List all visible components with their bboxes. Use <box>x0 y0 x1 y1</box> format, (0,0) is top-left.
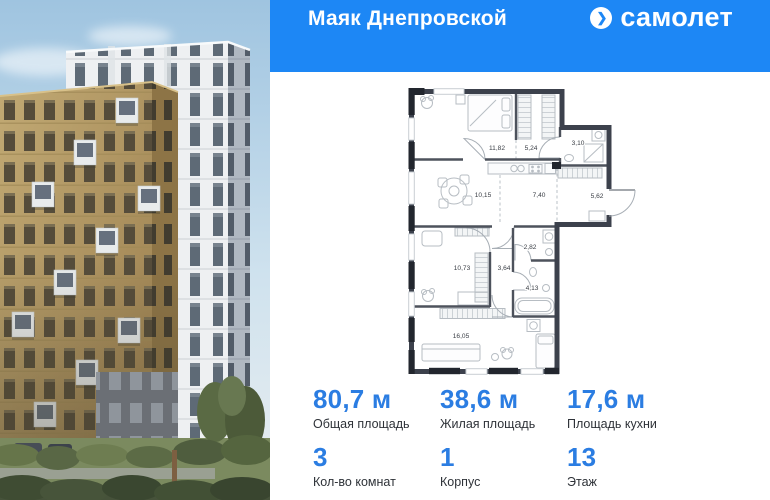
stat-value: 3 <box>313 444 440 471</box>
room-area-label: 16,05 <box>453 333 470 340</box>
stat-value: 80,7 м <box>313 386 440 413</box>
room-area-label: 3,64 <box>498 265 511 272</box>
entrance-door <box>606 189 636 216</box>
stat-rooms-count: 3 Кол-во комнат <box>313 444 440 489</box>
stat-label: Жилая площадь <box>440 417 567 431</box>
listing-card: Маяк Днепровской ❯ самолет <box>0 0 770 500</box>
stat-building: 1 Корпус <box>440 444 567 489</box>
building-photo <box>0 0 270 500</box>
building-photo-art <box>0 0 270 500</box>
room-area-label: 5,24 <box>525 145 538 152</box>
room-area-label: 7,40 <box>533 192 546 199</box>
stat-kitchen-area: 17,6 м Площадь кухни <box>567 386 693 431</box>
stat-value: 38,6 м <box>440 386 567 413</box>
stat-value: 17,6 м <box>567 386 693 413</box>
room-area-label: 5,62 <box>591 193 604 200</box>
project-title: Маяк Днепровской <box>308 7 507 31</box>
stat-living-area: 38,6 м Жилая площадь <box>440 386 567 431</box>
brand-name: самолет <box>620 4 733 31</box>
stat-label: Общая площадь <box>313 417 440 431</box>
info-panel: Маяк Днепровской ❯ самолет <box>270 0 770 500</box>
floor-plan: 11,82 5,24 3,10 10,15 7,40 5,62 2,82 10,… <box>400 80 656 382</box>
stat-value: 1 <box>440 444 567 471</box>
floor-plan-drawing: 11,82 5,24 3,10 10,15 7,40 5,62 2,82 10,… <box>400 80 656 382</box>
samolet-arrow-icon: ❯ <box>590 7 612 29</box>
stat-value: 13 <box>567 444 693 471</box>
room-area-label: 2,82 <box>524 244 537 251</box>
stats-grid: 80,7 м Общая площадь 38,6 м Жилая площад… <box>313 386 693 489</box>
stat-label: Корпус <box>440 475 567 489</box>
stat-label: Площадь кухни <box>567 417 693 431</box>
tan-tower <box>0 82 178 442</box>
stat-label: Кол-во комнат <box>313 475 440 489</box>
room-area-label: 11,82 <box>489 145 505 152</box>
stat-floor: 13 Этаж <box>567 444 693 489</box>
room-area-label: 3,10 <box>572 140 585 147</box>
stat-label: Этаж <box>567 475 693 489</box>
brand-logo: ❯ самолет <box>590 4 733 31</box>
room-area-label: 10,15 <box>475 192 492 199</box>
room-area-label: 10,73 <box>454 265 471 272</box>
header-bar: Маяк Днепровской ❯ самолет <box>270 0 770 72</box>
room-area-label: 4,13 <box>526 285 539 292</box>
stat-total-area: 80,7 м Общая площадь <box>313 386 440 431</box>
